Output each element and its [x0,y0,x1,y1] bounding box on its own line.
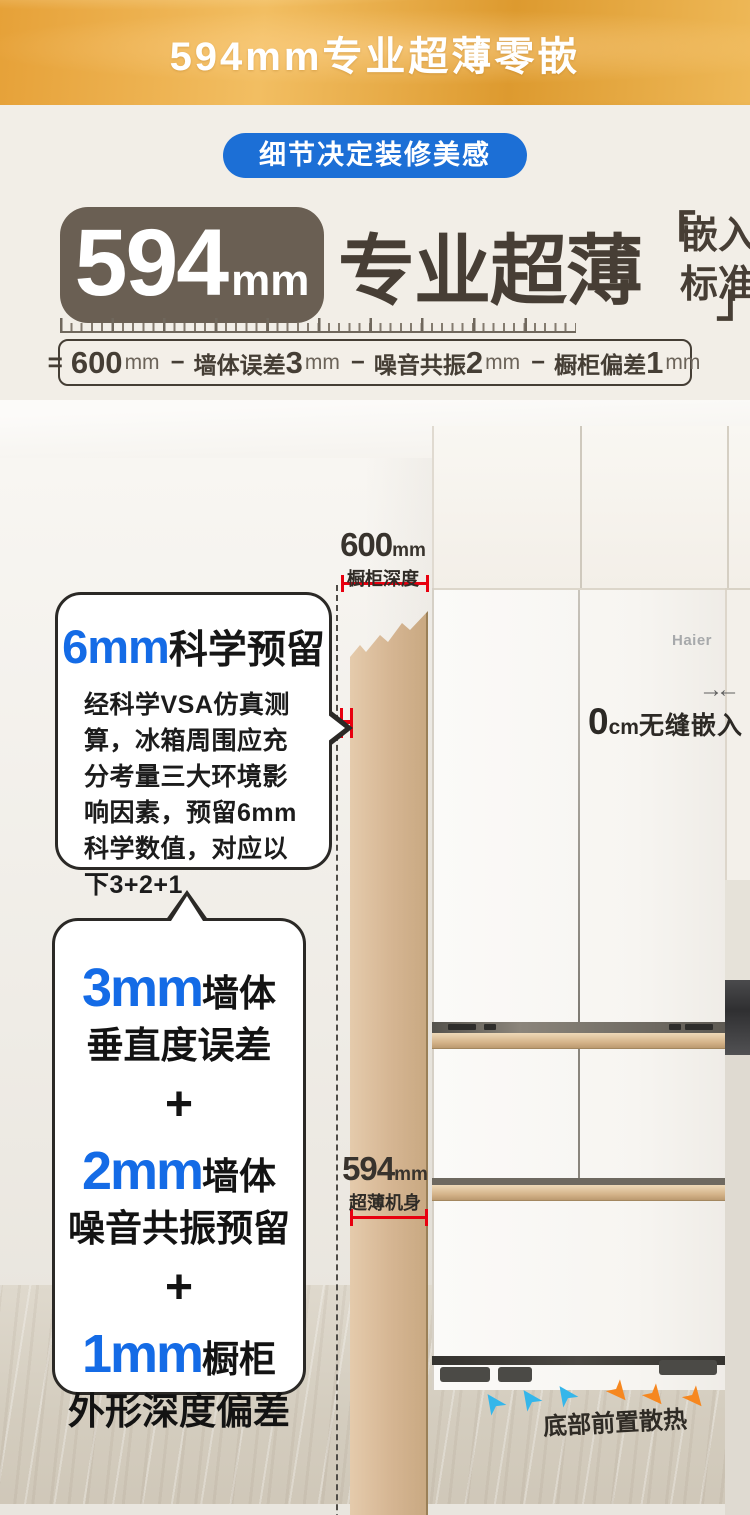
section-intro: 细节决定装修美感 594mm 专业超薄 「 嵌入 标准 」 = 600 mm −… [0,105,750,400]
formula-base-value: 600 [71,345,123,381]
bracket-close: 」 [716,264,750,330]
body-depth-value: 594 [342,1150,394,1187]
flush-embed-value: 0 [588,701,609,742]
fridge-door-seam [578,590,580,1022]
callout-title-value: 6mm [62,620,169,673]
body-depth-measure-line [350,1216,428,1219]
breakdown-value: 3mm [82,958,202,1018]
formula-term-3-value: 1 [646,345,663,381]
fridge-handle-bar [432,1185,725,1201]
breakdown-label: 橱柜 [202,1339,276,1380]
formula-term-1: 墙体误差 [194,346,286,380]
breakdown-sub: 垂直度误差 [55,1015,303,1069]
formula-term-2: 噪音共振 [374,346,466,380]
body-depth-caption: 超薄机身 [330,1189,440,1215]
breakdown-item: 3mm墙体 垂直度误差 [55,957,303,1069]
intake-arrow-icon: ➤ [475,1384,513,1421]
intro-badge: 细节决定装修美感 [223,133,527,178]
cabinet-depth-label: 600mm 橱柜深度 [330,526,436,591]
fridge-handle-bar [432,1033,725,1049]
cabinet-side-panel-cutaway [350,595,428,1515]
kitchen-scene: Haier 600mm 橱柜深度 594mm 超薄机身 →← 0cm无缝嵌入 ➤… [0,400,750,1515]
callout-pointer [165,890,209,921]
callout-body-text: 经科学VSA仿真测算，冰箱周围应充分考量三大环境影响因素，预留6mm科学数值，对… [84,687,305,903]
body-depth-unit: mm [394,1164,428,1185]
fridge-drawer-gap [432,1178,725,1185]
formula-term-3: 橱柜偏差 [554,346,646,380]
callout-title-label: 科学预留 [169,629,325,672]
product-detail-page: 594mm专业超薄零嵌 细节决定装修美感 594mm 专业超薄 「 嵌入 标准 … [0,0,750,1515]
flush-embed-caption: 无缝嵌入 [639,712,743,740]
formula-minus-2: − [351,349,365,377]
headline-value: 594 [75,210,228,316]
bracket-line-1: 嵌入 [680,212,750,261]
arrows-meeting-icon: →← [588,680,743,700]
formula-minus-1: − [171,349,185,377]
haier-logo: Haier [672,632,712,649]
built-in-oven [725,980,750,1055]
headline-bracket-block: 「 嵌入 标准 」 [650,206,750,324]
ruler-ticks-icon [60,318,576,333]
breakdown-item: 2mm墙体 噪音共振预留 [55,1140,303,1252]
formula-term-2-value: 2 [466,345,483,381]
headline-text: 专业超薄 [338,210,642,321]
flush-embed-unit: cm [609,716,639,739]
upper-cabinet [432,426,750,590]
fridge-drawer-seam [578,1049,580,1178]
breakdown-sub: 噪音共振预留 [55,1198,303,1252]
base-cabinet [725,1055,750,1515]
plus-sign: + [55,1077,303,1132]
callout-pointer [329,709,353,747]
cabinet-depth-caption: 橱柜深度 [330,565,436,591]
formula-term-1-unit: mm [305,351,340,375]
formula-box: = 600 mm − 墙体误差 3 mm − 噪音共振 2 mm − 橱柜偏差 … [58,339,692,386]
breakdown-value: 1mm [82,1324,202,1384]
formula-term-2-unit: mm [485,351,520,375]
headline-value-box: 594mm [60,207,324,323]
formula-minus-3: − [531,349,545,377]
counter-recess [725,880,750,980]
plus-sign: + [55,1260,303,1315]
breakdown-value: 2mm [82,1141,202,1201]
callout-breakdown-321: 3mm墙体 垂直度误差 + 2mm墙体 噪音共振预留 + 1mm橱柜 外形深度偏… [52,918,306,1395]
breakdown-item: 1mm橱柜 外形深度偏差 [55,1323,303,1435]
cabinet-depth-value: 600 [340,526,392,563]
cabinet-depth-unit: mm [392,540,426,561]
breakdown-label: 墙体 [202,1156,276,1197]
headline-unit: mm [231,256,309,305]
fridge-door-gap [432,1022,725,1033]
breakdown-sub: 外形深度偏差 [55,1381,303,1435]
cabinet-door-seam [580,426,582,588]
formula-term-3-unit: mm [665,351,700,375]
flush-embed-label: →← 0cm无缝嵌入 [588,680,743,743]
breakdown-label: 墙体 [202,973,276,1014]
banner-title: 594mm专业超薄零嵌 [170,24,581,82]
section-banner: 594mm专业超薄零嵌 [0,0,750,105]
formula-equals: = [48,347,63,378]
callout-reserve-6mm: 6mm科学预留 经科学VSA仿真测算，冰箱周围应充分考量三大环境影响因素，预留6… [55,592,332,870]
cabinet-door-seam [727,426,729,588]
headline: 594mm 专业超薄 「 嵌入 标准 」 [60,205,700,325]
formula-term-1-value: 3 [286,345,303,381]
formula-base-unit: mm [125,351,160,375]
body-depth-label: 594mm 超薄机身 [330,1150,440,1215]
